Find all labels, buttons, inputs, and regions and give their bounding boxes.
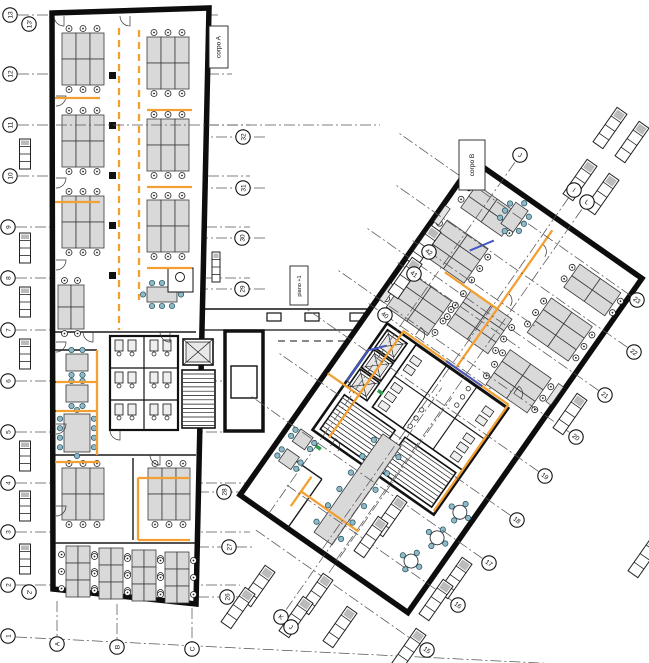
- desk: [62, 115, 76, 141]
- meeting-chair: [69, 347, 74, 352]
- office-chair-dot: [153, 114, 155, 116]
- radiator-hatch: [21, 235, 29, 240]
- desk: [66, 546, 78, 563]
- meeting-table-top: [66, 354, 88, 371]
- radiator-hatch: [21, 443, 29, 448]
- desk: [90, 141, 104, 167]
- office-chair-dot: [82, 191, 84, 193]
- desk: [161, 145, 175, 171]
- desk: [90, 115, 104, 141]
- office-chair-dot: [193, 594, 195, 596]
- desk-cluster: [62, 189, 104, 256]
- office-chair-dot: [167, 93, 169, 95]
- radiator-block: [20, 139, 31, 169]
- meeting-chair: [69, 403, 74, 408]
- grid-bubble-label: 28: [221, 488, 228, 496]
- office-chair-dot: [127, 575, 129, 577]
- desk: [161, 37, 175, 63]
- floor-plan-page: 1313'121110987654322'1ABC323130292827262…: [0, 0, 649, 663]
- grid-bubble-15: 15: [420, 643, 434, 657]
- office-chair-dot: [82, 110, 84, 112]
- meeting-chair: [149, 280, 154, 285]
- office-chair-dot: [96, 89, 98, 91]
- desk: [90, 196, 104, 222]
- grid-bubble-20: 20: [569, 430, 583, 444]
- meeting-chair: [149, 303, 154, 308]
- desk: [90, 33, 104, 59]
- office-chair-dot: [167, 195, 169, 197]
- floor-level-label: piano +1: [290, 266, 308, 305]
- stair: [182, 370, 215, 428]
- desk: [147, 119, 161, 145]
- grid-bubble-22: 22: [627, 345, 641, 359]
- grid-bubble-label: B: [114, 645, 121, 649]
- desk: [62, 222, 76, 248]
- desk: [147, 145, 161, 171]
- desk-cluster: [148, 461, 190, 528]
- meeting-chair: [178, 292, 183, 297]
- grid-bubble-label: 12: [7, 70, 14, 78]
- desk: [147, 200, 161, 226]
- grid-bubble-label: A: [54, 641, 61, 646]
- office-chair-dot: [168, 524, 170, 526]
- desk: [144, 567, 156, 584]
- office-chair-dot: [96, 171, 98, 173]
- desk: [175, 145, 189, 171]
- grid-bubble-label: 10: [7, 172, 14, 180]
- office-chair-dot: [68, 110, 70, 112]
- grid-bubble-13p: 13': [22, 17, 36, 31]
- corpo-a-wing: [52, 8, 263, 604]
- wc-fixture: [150, 404, 158, 415]
- column: [109, 272, 116, 279]
- grid-bubble-label: 13': [26, 20, 33, 28]
- desk: [62, 494, 76, 520]
- kitchen-counter: [168, 268, 193, 292]
- meeting-chair: [80, 372, 85, 377]
- desk: [99, 565, 111, 582]
- wc-fixture: [115, 404, 123, 415]
- corpo-b-label-text: corpo B: [469, 154, 476, 176]
- radiator-hatch: [21, 141, 29, 146]
- desk: [58, 307, 71, 329]
- office-chair-dot: [82, 28, 84, 30]
- grid-bubble-8: 8: [1, 271, 15, 285]
- desk: [66, 563, 78, 580]
- column: [109, 172, 116, 179]
- wc-fixture: [150, 372, 158, 383]
- meeting-chair: [80, 347, 85, 352]
- office-chair-dot: [61, 554, 63, 556]
- desk: [175, 37, 189, 63]
- meeting-chair: [80, 403, 85, 408]
- meeting-chair: [74, 453, 79, 458]
- wc-fixture: [128, 340, 136, 351]
- office-chair-dot: [64, 280, 66, 282]
- desk: [90, 468, 104, 494]
- office-chair-dot: [94, 556, 96, 558]
- desk-cluster: [62, 461, 104, 528]
- grid-bubble-label: 13: [7, 11, 14, 19]
- desk-cluster: [147, 30, 189, 97]
- desk: [62, 468, 76, 494]
- desk: [132, 584, 144, 601]
- grid-bubble-label: 2: [5, 583, 12, 587]
- desk: [175, 63, 189, 89]
- office-chair-dot: [160, 577, 162, 579]
- office-chair-dot: [167, 114, 169, 116]
- elevator: [183, 339, 213, 365]
- meeting-chair: [57, 426, 62, 431]
- desk: [62, 141, 76, 167]
- grid-bubble-label: 4: [5, 481, 12, 485]
- office-chair-dot: [68, 252, 70, 254]
- office-chair-dot: [61, 571, 63, 573]
- grid-bubble-18: 18: [510, 513, 524, 527]
- desk: [76, 222, 90, 248]
- office-chair-dot: [160, 594, 162, 596]
- office-chair-dot: [153, 256, 155, 258]
- office-chair-dot: [160, 560, 162, 562]
- meeting-table-top: [64, 414, 90, 452]
- meeting-table-top: [66, 385, 88, 402]
- grid-bubble-label: 2': [26, 590, 33, 595]
- corpo-b-wing: [240, 161, 642, 613]
- radiator-block: [20, 441, 31, 471]
- desk: [78, 563, 90, 580]
- grid-bubble-40: 40: [378, 308, 392, 322]
- grid-bubble-label: 27: [226, 543, 233, 551]
- office-chair-dot: [127, 592, 129, 594]
- office-chair-dot: [77, 280, 79, 282]
- grid-bubble-17: 17: [482, 556, 496, 570]
- desk: [147, 37, 161, 63]
- radiator-outline: [628, 536, 649, 577]
- office-chair-dot: [96, 110, 98, 112]
- radiator-block: [20, 491, 31, 521]
- office-chair-dot: [153, 195, 155, 197]
- desk: [176, 468, 190, 494]
- corpo-a-label: corpo A: [209, 26, 228, 68]
- desk: [161, 226, 175, 252]
- grid-bubble-2: 2: [1, 578, 15, 592]
- grid-bubble-27: 27: [222, 540, 236, 554]
- desk: [76, 33, 90, 59]
- grid-bubble-label: 30: [239, 234, 246, 242]
- desk: [162, 468, 176, 494]
- column: [109, 72, 116, 79]
- office-chair-dot: [182, 524, 184, 526]
- office-chair-dot: [68, 89, 70, 91]
- office-chair-dot: [182, 463, 184, 465]
- desk: [111, 548, 123, 565]
- grid-bubble-30: 30: [235, 231, 249, 245]
- grid-bubble-23: 23: [630, 293, 644, 307]
- desk: [71, 307, 84, 329]
- meeting-chair: [140, 292, 145, 297]
- office-chair-dot: [167, 32, 169, 34]
- column: [109, 122, 116, 129]
- grid-bubble-41: 41: [407, 267, 421, 281]
- office-chair-dot: [82, 89, 84, 91]
- desk: [175, 226, 189, 252]
- desk: [175, 119, 189, 145]
- grid-bubble-6: 6: [1, 374, 15, 388]
- office-chair-dot: [127, 558, 129, 560]
- desk: [99, 548, 111, 565]
- desk: [147, 226, 161, 252]
- corpo-b-label: corpo B: [459, 140, 485, 190]
- desk: [78, 580, 90, 597]
- desk: [90, 494, 104, 520]
- desk: [161, 63, 175, 89]
- office-chair-dot: [181, 93, 183, 95]
- grid-bubble-A: A: [50, 637, 64, 651]
- link-room: [231, 366, 257, 398]
- office-chair-dot: [96, 524, 98, 526]
- desk: [90, 59, 104, 85]
- desk: [148, 468, 162, 494]
- office-chair-dot: [153, 93, 155, 95]
- grid-bubble-label: 32: [240, 133, 247, 141]
- radiator-block: [20, 287, 31, 317]
- office-chair-dot: [181, 195, 183, 197]
- radiator-hatch: [214, 254, 219, 259]
- desk: [176, 494, 190, 520]
- desk: [147, 63, 161, 89]
- desk: [177, 569, 189, 586]
- office-chair-dot: [181, 175, 183, 177]
- radiator-block: [20, 233, 31, 263]
- desk: [71, 285, 84, 307]
- wc-fixture: [128, 404, 136, 415]
- grid-bubble-L: L: [580, 195, 594, 209]
- desk: [165, 569, 177, 586]
- grid-bubble-19: 19: [538, 469, 552, 483]
- desk-cluster: [147, 193, 189, 260]
- wc-fixture: [115, 372, 123, 383]
- office-chair-dot: [68, 191, 70, 193]
- floor-level-label-text: piano +1: [297, 275, 303, 296]
- desk: [76, 115, 90, 141]
- desk: [161, 200, 175, 226]
- radiator-block: [212, 252, 220, 282]
- office-chair-dot: [61, 588, 63, 590]
- grid-bubble-label: 26: [224, 593, 231, 601]
- office-chair-dot: [94, 573, 96, 575]
- grid-bubble-label: C: [189, 646, 196, 651]
- radiator-hatch: [21, 341, 29, 346]
- wc-fixture: [128, 372, 136, 383]
- office-chair-dot: [94, 590, 96, 592]
- grid-bubble-label: 29: [239, 285, 246, 293]
- grid-bubble-1: 1: [1, 629, 15, 643]
- grid-bubble-7: 7: [1, 323, 15, 337]
- desk: [177, 552, 189, 569]
- desk: [62, 196, 76, 222]
- column: [109, 222, 116, 229]
- grid-bubble-13: 13: [3, 8, 17, 22]
- grid-bubble-J: J: [513, 148, 527, 162]
- desk-cluster: [58, 278, 84, 337]
- office-chair-dot: [96, 191, 98, 193]
- meeting-chair: [159, 280, 164, 285]
- grid-bubble-2p: 2': [22, 585, 36, 599]
- desk: [111, 565, 123, 582]
- office-chair-dot: [82, 524, 84, 526]
- grid-bubble-26: 26: [220, 590, 234, 604]
- meeting-chair: [69, 372, 74, 377]
- desk: [76, 59, 90, 85]
- desk: [99, 582, 111, 599]
- desk: [165, 586, 177, 603]
- desk: [144, 550, 156, 567]
- desk: [177, 586, 189, 603]
- wc-fixture: [163, 372, 171, 383]
- floor-plan-canvas: 1313'121110987654322'1ABC323130292827262…: [0, 0, 649, 663]
- radiator-hatch: [21, 493, 29, 498]
- grid-bubble-12: 12: [3, 67, 17, 81]
- grid-bubble-label: 5: [5, 430, 12, 434]
- desk: [165, 552, 177, 569]
- desk: [132, 550, 144, 567]
- grid-bubble-B: B: [110, 640, 124, 654]
- office-chair-dot: [167, 175, 169, 177]
- desk-cluster: [62, 108, 104, 175]
- radiator-block: [593, 107, 627, 148]
- grid-bubble-3: 3: [1, 525, 15, 539]
- corpo-a-label-text: corpo A: [216, 35, 223, 58]
- desk: [76, 141, 90, 167]
- desk: [162, 494, 176, 520]
- desk: [161, 119, 175, 145]
- radiator-block: [20, 339, 31, 369]
- desk: [62, 33, 76, 59]
- wc-fixture: [163, 404, 171, 415]
- office-chair-dot: [153, 175, 155, 177]
- grid-bubble-10: 10: [3, 169, 17, 183]
- radiator-block: [323, 606, 357, 647]
- office-chair-dot: [181, 32, 183, 34]
- desk: [175, 200, 189, 226]
- grid-bubble-label: 1: [5, 634, 12, 638]
- office-chair-dot: [181, 256, 183, 258]
- office-chair-dot: [68, 28, 70, 30]
- office-chair-dot: [68, 171, 70, 173]
- desk: [90, 222, 104, 248]
- desk: [148, 494, 162, 520]
- office-chair-dot: [193, 560, 195, 562]
- meeting-chair: [57, 445, 62, 450]
- bridge-column: [305, 313, 319, 321]
- grid-bubble-11: 11: [3, 118, 17, 132]
- grid-bubble-4: 4: [1, 476, 15, 490]
- office-chair-dot: [64, 333, 66, 335]
- meeting-chair: [57, 435, 62, 440]
- office-chair-dot: [168, 463, 170, 465]
- grid-bubble-label: 7: [5, 328, 12, 332]
- office-chair-dot: [96, 28, 98, 30]
- desk-cluster: [147, 112, 189, 179]
- grid-bubble-I: I: [567, 183, 581, 197]
- radiator-block: [20, 544, 31, 574]
- grid-bubble-label: 11: [7, 121, 14, 128]
- grid-bubble-32: 32: [236, 130, 250, 144]
- grid-bubble-C: C: [185, 642, 199, 656]
- radiator-hatch: [21, 546, 29, 551]
- grid-bubble-5: 5: [1, 425, 15, 439]
- grid-bubble-21: 21: [598, 388, 612, 402]
- office-chair-dot: [68, 524, 70, 526]
- radiator-hatch: [21, 289, 29, 294]
- office-chair-dot: [82, 252, 84, 254]
- office-chair-dot: [82, 171, 84, 173]
- grid-bubble-29: 29: [235, 282, 249, 296]
- grid-bubble-label: 31: [240, 184, 247, 192]
- office-chair-dot: [193, 577, 195, 579]
- meeting-chair: [57, 416, 62, 421]
- office-chair-dot: [153, 32, 155, 34]
- grid-bubble-label: 6: [5, 379, 12, 383]
- wc-fixture: [150, 340, 158, 351]
- office-chair-dot: [96, 252, 98, 254]
- desk: [76, 494, 90, 520]
- link-bridge-layer: [197, 309, 369, 341]
- desk: [76, 196, 90, 222]
- desk-cluster: [158, 552, 197, 603]
- meeting-chair: [169, 303, 174, 308]
- desk: [144, 584, 156, 601]
- wc-fixture: [115, 340, 123, 351]
- grid-bubble-J: J: [284, 620, 298, 634]
- office-chair-dot: [77, 333, 79, 335]
- desk-cluster: [62, 26, 104, 93]
- grid-bubble-16: 16: [451, 598, 465, 612]
- bridge-column: [267, 313, 281, 321]
- desk: [111, 582, 123, 599]
- desk: [58, 285, 71, 307]
- office-chair-dot: [154, 524, 156, 526]
- desk: [76, 468, 90, 494]
- grid-bubble-label: 9: [5, 225, 12, 229]
- office-chair-dot: [181, 114, 183, 116]
- grid-bubble-31: 31: [236, 181, 250, 195]
- grid-bubble-9: 9: [1, 220, 15, 234]
- grid-bubble-label: 8: [5, 276, 12, 280]
- desk: [62, 59, 76, 85]
- grid-bubble-42: 42: [422, 245, 436, 259]
- desk: [78, 546, 90, 563]
- grid-bubble-label: 3: [5, 530, 12, 534]
- stair-outline: [182, 370, 215, 428]
- radiator-block: [615, 121, 649, 162]
- radiator-block: [628, 536, 649, 577]
- desk: [66, 580, 78, 597]
- meeting-chair: [159, 303, 164, 308]
- grid-bubble-28: 28: [217, 485, 231, 499]
- desk: [132, 567, 144, 584]
- office-chair-dot: [167, 256, 169, 258]
